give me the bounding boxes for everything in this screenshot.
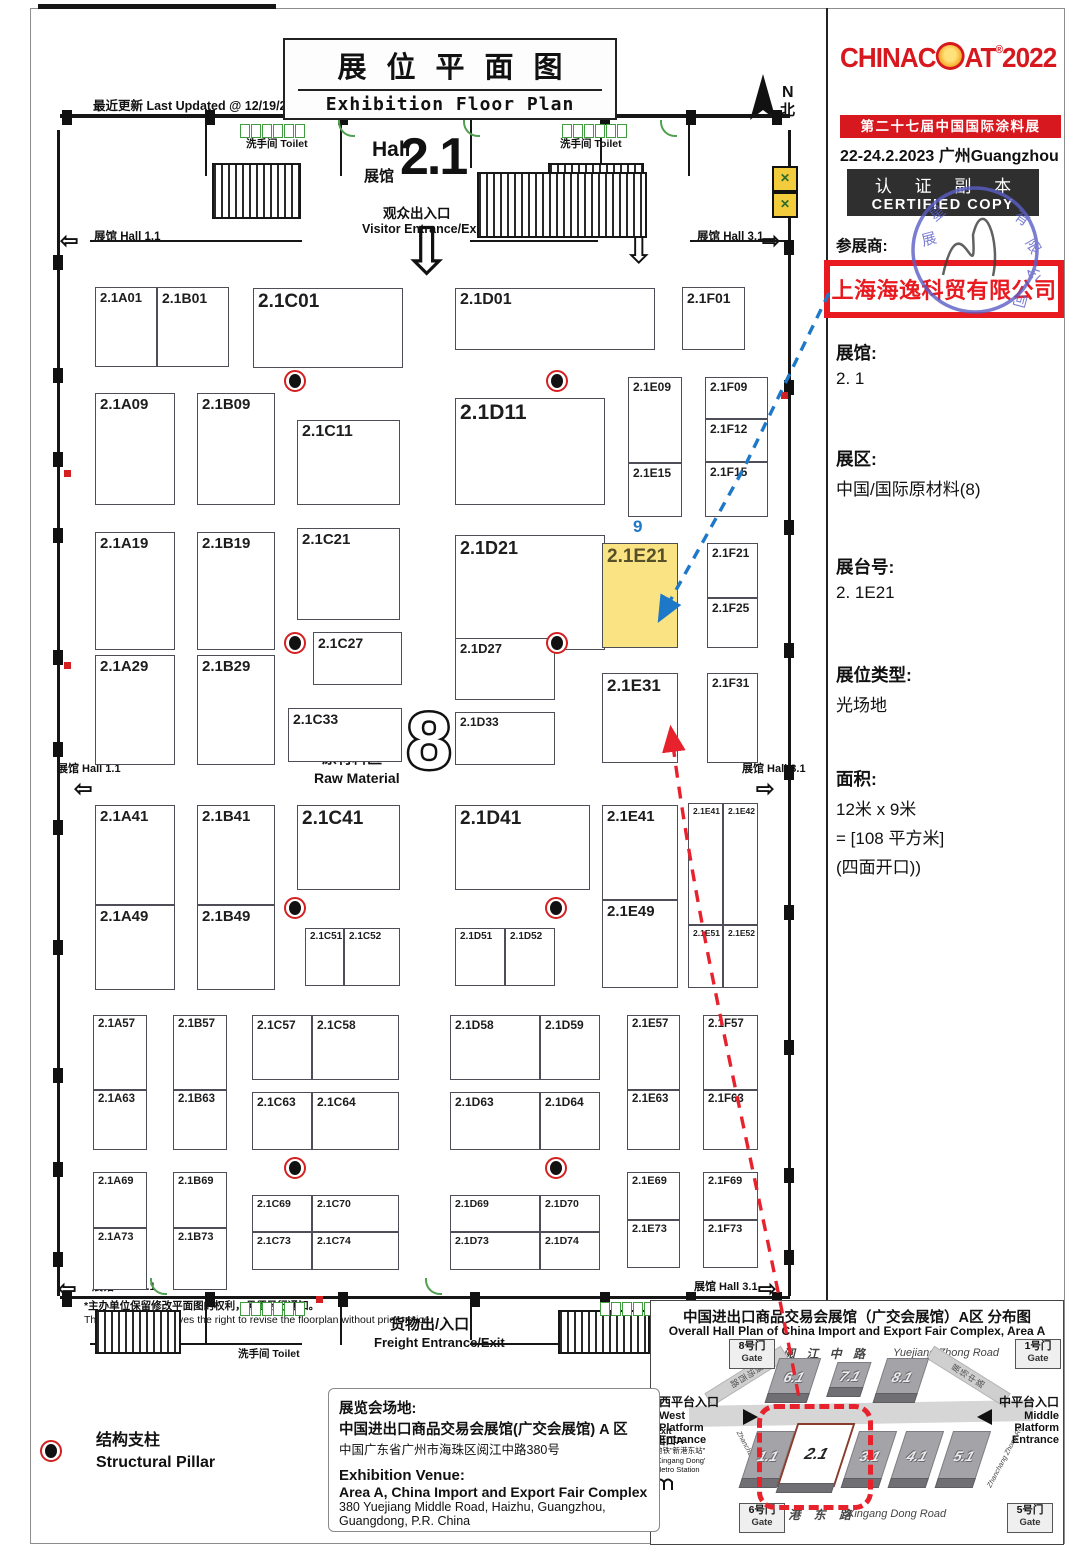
wall-pillar bbox=[784, 240, 794, 255]
chinacoat-logo: CHINACAT®2022 bbox=[840, 42, 1064, 74]
wall-pillar bbox=[784, 1250, 794, 1265]
svg-text:展: 展 bbox=[920, 230, 939, 250]
toilet-stall bbox=[262, 124, 272, 138]
booth-2.1C73: 2.1C73 bbox=[252, 1232, 312, 1270]
west-entrance-arrow-icon bbox=[743, 1409, 758, 1425]
booth-2.1C33: 2.1C33 bbox=[288, 708, 402, 762]
booth-2.1E51: 2.1E51 bbox=[688, 925, 723, 988]
hall11-arrow-left-mid-icon: ⇦ bbox=[74, 776, 92, 801]
booth-dim-width: 9 bbox=[633, 517, 642, 537]
hall31-label-top: 展馆 Hall 3.1 bbox=[697, 231, 763, 244]
certified-en: CERTIFIED COPY bbox=[847, 197, 1039, 213]
field-label: 面积: bbox=[836, 766, 877, 791]
toilet-stall bbox=[295, 1302, 305, 1316]
title-separator bbox=[298, 89, 602, 91]
wall-pillar bbox=[53, 452, 63, 467]
booth-2.1D51: 2.1D51 bbox=[455, 928, 505, 986]
svg-text:8: 8 bbox=[407, 696, 452, 785]
booth-2.1A49: 2.1A49 bbox=[95, 905, 175, 990]
booth-2.1D01: 2.1D01 bbox=[455, 288, 655, 350]
escalator-icon: ✕ bbox=[772, 166, 798, 192]
venue-en-line2: 380 Yuejiang Middle Road, Haizhu, Guangz… bbox=[339, 1500, 649, 1514]
middle-platform-entrance: 中平台入口 MiddlePlatformEntrance bbox=[995, 1393, 1059, 1446]
toilet-stall bbox=[273, 1302, 283, 1316]
wall-marker-red bbox=[64, 470, 71, 477]
field-value: 光场地 bbox=[836, 691, 887, 716]
booth-2.1D52: 2.1D52 bbox=[505, 928, 555, 986]
wall-segment bbox=[90, 240, 302, 242]
wall-pillar bbox=[53, 255, 63, 270]
event-date: 22-24.2.2023 广州Guangzhou bbox=[840, 142, 1059, 166]
toilet-stall bbox=[611, 1302, 621, 1316]
wall-pillar bbox=[784, 643, 794, 658]
minimap-hall-5.1: 5.1 bbox=[937, 1431, 991, 1481]
structural-pillar-icon bbox=[284, 632, 306, 654]
wall-pillar bbox=[470, 1292, 480, 1307]
wall-marker-red bbox=[316, 1296, 323, 1303]
venue-en-line3: Guangdong, P.R. China bbox=[339, 1514, 649, 1528]
booth-2.1B19: 2.1B19 bbox=[197, 532, 275, 650]
hall31-label-bottom: 展馆 Hall 3.1 bbox=[694, 1281, 758, 1294]
booth-2.1F01: 2.1F01 bbox=[682, 287, 745, 350]
toilet-stall bbox=[584, 124, 594, 138]
booth-2.1F25: 2.1F25 bbox=[707, 598, 758, 648]
structural-pillar-icon bbox=[545, 1157, 567, 1179]
booth-2.1C27: 2.1C27 bbox=[313, 632, 402, 685]
hall11-arrow-left-icon: ⇦ bbox=[60, 228, 78, 253]
booth-2.1C69: 2.1C69 bbox=[252, 1195, 312, 1232]
wall-pillar bbox=[686, 110, 696, 125]
booth-2.1D70: 2.1D70 bbox=[540, 1195, 600, 1232]
booth-2.1C21: 2.1C21 bbox=[297, 528, 400, 620]
exhibitor-label: 参展商: bbox=[836, 238, 888, 256]
hall31-label-mid: 展馆 Hall 3.1 bbox=[742, 763, 806, 776]
toilet-stall bbox=[251, 1302, 261, 1316]
structural-pillar-icon bbox=[284, 1157, 306, 1179]
booth-2.1C41: 2.1C41 bbox=[297, 805, 400, 890]
booth-2.1E41: 2.1E41 bbox=[602, 805, 678, 900]
booth-2.1A57: 2.1A57 bbox=[93, 1015, 147, 1090]
booth-2.1B63: 2.1B63 bbox=[173, 1090, 227, 1150]
toilet-stall bbox=[622, 1302, 632, 1316]
field-label: 展馆: bbox=[836, 340, 877, 365]
legend-pillar-en: Structural Pillar bbox=[96, 1454, 215, 1472]
certified-copy-badge: 认 证 副 本 CERTIFIED COPY bbox=[847, 169, 1039, 216]
stairs-hatch bbox=[477, 172, 647, 238]
highlight-dashed-box bbox=[757, 1404, 873, 1510]
hall31-arrow-right-mid-icon: ⇨ bbox=[756, 776, 774, 801]
wall-segment bbox=[57, 130, 60, 1296]
scan-artifact-line bbox=[38, 4, 276, 9]
wall-pillar bbox=[205, 1292, 215, 1307]
booth-2.1F57: 2.1F57 bbox=[703, 1015, 758, 1090]
booth-2.1D74: 2.1D74 bbox=[540, 1232, 600, 1270]
toilet-label-2: 洗手间 Toilet bbox=[560, 138, 622, 150]
booth-2.1F69: 2.1F69 bbox=[703, 1172, 758, 1220]
toilet-stall bbox=[573, 124, 583, 138]
wall-pillar bbox=[205, 110, 215, 125]
structural-pillar-legend-icon bbox=[40, 1440, 62, 1462]
booth-2.1D73: 2.1D73 bbox=[450, 1232, 540, 1270]
structural-pillar-icon bbox=[545, 897, 567, 919]
booth-2.1B57: 2.1B57 bbox=[173, 1015, 227, 1090]
field-value: (四面开口)) bbox=[836, 853, 921, 878]
booth-2.1D11: 2.1D11 bbox=[455, 398, 605, 505]
venue-info-box: 展览会场地: 中国进出口商品交易会展馆(广交会展馆) A 区 中国广东省广州市海… bbox=[328, 1388, 660, 1532]
booth-2.1B09: 2.1B09 bbox=[197, 393, 275, 505]
booth-2.1E69: 2.1E69 bbox=[627, 1172, 680, 1220]
booth-2.1B49: 2.1B49 bbox=[197, 905, 275, 990]
scanned-floorplan-page: 最近更新 Last Updated @ 12/19/2022 展位平面图 Exh… bbox=[0, 0, 1080, 1548]
hall-number: 2.1 bbox=[400, 128, 466, 188]
wall-pillar bbox=[338, 1292, 348, 1307]
booth-2.1B41: 2.1B41 bbox=[197, 805, 275, 905]
booth-2.1B73: 2.1B73 bbox=[173, 1228, 227, 1290]
booth-2.1E09: 2.1E09 bbox=[628, 377, 682, 463]
field-label: 展位类型: bbox=[836, 662, 912, 687]
booth-2.1A41: 2.1A41 bbox=[95, 805, 175, 905]
booth-2.1E73: 2.1E73 bbox=[627, 1220, 680, 1268]
booth-2.1E49: 2.1E49 bbox=[602, 900, 678, 988]
plan-title-en: Exhibition Floor Plan bbox=[326, 94, 575, 115]
booth-2.1D63: 2.1D63 bbox=[450, 1092, 540, 1150]
booth-2.1C11: 2.1C11 bbox=[297, 420, 400, 505]
field-value: 2. 1E21 bbox=[836, 583, 895, 603]
booth-2.1A63: 2.1A63 bbox=[93, 1090, 147, 1150]
wall-segment bbox=[788, 130, 791, 1296]
structural-pillar-icon bbox=[284, 897, 306, 919]
booth-2.1C74: 2.1C74 bbox=[312, 1232, 399, 1270]
toilet-stall bbox=[251, 124, 261, 138]
booth-2.1E31: 2.1E31 bbox=[602, 673, 678, 763]
booth-2.1E52: 2.1E52 bbox=[723, 925, 758, 988]
sidebar-divider bbox=[826, 8, 828, 1300]
wall-pillar bbox=[784, 765, 794, 780]
field-value: 12米 x 9米 bbox=[836, 795, 916, 820]
booth-2.1B01: 2.1B01 bbox=[157, 287, 229, 367]
certified-cn: 认 证 副 本 bbox=[847, 169, 1039, 197]
stairs-hatch bbox=[558, 1310, 650, 1354]
entrance-arrow-down-icon: ⇩ bbox=[399, 218, 454, 284]
booth-2.1D33: 2.1D33 bbox=[455, 712, 555, 765]
booth-2.1C52: 2.1C52 bbox=[344, 928, 400, 986]
wall-pillar bbox=[62, 1292, 72, 1307]
wall-pillar bbox=[53, 368, 63, 383]
minimap-hall-4.1: 4.1 bbox=[890, 1431, 944, 1481]
structural-pillar-icon bbox=[546, 632, 568, 654]
toilet-label-1: 洗手间 Toilet bbox=[246, 138, 308, 150]
plan-title-cn: 展位平面图 bbox=[317, 44, 582, 86]
venue-cn-label: 展览会场地: bbox=[339, 1397, 649, 1418]
gate-1: 1号门Gate bbox=[1015, 1339, 1061, 1369]
booth-2.1E41: 2.1E41 bbox=[688, 803, 723, 925]
hall11-label-top: 展馆 Hall 1.1 bbox=[94, 231, 160, 244]
booth-2.1A69: 2.1A69 bbox=[93, 1172, 147, 1228]
wall-pillar bbox=[53, 528, 63, 543]
last-updated-note: 最近更新 Last Updated @ 12/19/2022 bbox=[93, 99, 307, 113]
booth-2.1F12: 2.1F12 bbox=[705, 419, 768, 462]
wall-segment bbox=[470, 240, 598, 242]
booth-2.1E57: 2.1E57 bbox=[627, 1015, 680, 1090]
stairs-hatch bbox=[95, 1310, 181, 1354]
toilet-stall bbox=[617, 124, 627, 138]
overall-hall-minimap: 中国进出口商品交易会展馆（广交会展馆）A区 分布图 Overall Hall P… bbox=[650, 1300, 1064, 1545]
wall-pillar bbox=[53, 1068, 63, 1083]
wall-segment bbox=[690, 240, 788, 242]
booth-2.1F63: 2.1F63 bbox=[703, 1090, 758, 1150]
hall-word-cn: 展馆 bbox=[364, 168, 394, 185]
booth-2.1E63: 2.1E63 bbox=[627, 1090, 680, 1150]
venue-en-label: Exhibition Venue: bbox=[339, 1467, 649, 1484]
logo-year: 2022 bbox=[1002, 42, 1056, 73]
booth-2.1E15: 2.1E15 bbox=[628, 463, 682, 517]
booth-2.1D58: 2.1D58 bbox=[450, 1015, 540, 1080]
wall-segment bbox=[205, 118, 207, 176]
minimap-hall-8.1: 8.1 bbox=[875, 1358, 929, 1396]
zone-number-8: 8 bbox=[396, 694, 462, 786]
booth-2.1A09: 2.1A09 bbox=[95, 393, 175, 505]
toilet-stall bbox=[284, 124, 294, 138]
wall-pillar bbox=[53, 1162, 63, 1177]
venue-en-line1: Area A, China Import and Export Fair Com… bbox=[339, 1484, 649, 1500]
wall-pillar bbox=[53, 650, 63, 665]
booth-2.1B29: 2.1B29 bbox=[197, 655, 275, 765]
toilet-stall bbox=[262, 1302, 272, 1316]
toilet-stall bbox=[295, 124, 305, 138]
wall-pillar bbox=[53, 820, 63, 835]
field-value: = [108 平方米] bbox=[836, 824, 944, 849]
booth-2.1A01: 2.1A01 bbox=[95, 287, 157, 367]
booth-2.1C70: 2.1C70 bbox=[312, 1195, 399, 1232]
booth-2.1A29: 2.1A29 bbox=[95, 655, 175, 765]
wall-pillar bbox=[53, 940, 63, 955]
booth-2.1D21: 2.1D21 bbox=[455, 535, 605, 650]
booth-2.1F15: 2.1F15 bbox=[705, 462, 768, 517]
wall-marker-red bbox=[64, 662, 71, 669]
wall-segment bbox=[60, 1296, 790, 1299]
door-arc bbox=[425, 1278, 442, 1295]
logo-text-right: AT bbox=[965, 42, 996, 73]
booth-2.1C63: 2.1C63 bbox=[252, 1092, 312, 1150]
booth-2.1A19: 2.1A19 bbox=[95, 532, 175, 650]
toilet-stall bbox=[273, 124, 283, 138]
wall-pillar bbox=[784, 905, 794, 920]
booth-2.1D69: 2.1D69 bbox=[450, 1195, 540, 1232]
svg-text:限: 限 bbox=[1022, 236, 1044, 258]
booth-2.1D41: 2.1D41 bbox=[455, 805, 590, 890]
field-value: 中国/国际原材料(8) bbox=[836, 475, 981, 500]
toilet-stall bbox=[240, 1302, 250, 1316]
toilet-stall bbox=[633, 1302, 643, 1316]
wall-pillar bbox=[53, 742, 63, 757]
escalator-icon: ✕ bbox=[772, 192, 798, 218]
wall-pillar bbox=[784, 1040, 794, 1055]
toilet-stall bbox=[595, 124, 605, 138]
venue-cn-line1: 中国进出口商品交易会展馆(广交会展馆) A 区 bbox=[339, 1418, 649, 1439]
booth-2.1D27: 2.1D27 bbox=[455, 638, 555, 700]
minimap-title-en: Overall Hall Plan of China Import and Ex… bbox=[651, 1324, 1063, 1338]
wall-segment bbox=[688, 118, 690, 176]
exhibitor-company-name: 上海海逸科贸有限公司 bbox=[831, 273, 1056, 305]
structural-pillar-icon bbox=[546, 370, 568, 392]
booth-2.1C51: 2.1C51 bbox=[305, 928, 344, 986]
metro-exit-info: Exit 出口A 地铁"新港东站" 'Xingang Dong' Metro S… bbox=[655, 1427, 705, 1491]
gate-5: 5号门Gate bbox=[1007, 1503, 1053, 1533]
zone-label-en: Raw Material bbox=[314, 770, 400, 786]
booth-2.1D64: 2.1D64 bbox=[540, 1092, 600, 1150]
wall-pillar bbox=[62, 110, 72, 125]
exhibitor-company-box: 上海海逸科贸有限公司 bbox=[824, 260, 1064, 318]
field-label: 展区: bbox=[836, 446, 877, 471]
wall-marker-red bbox=[781, 392, 788, 399]
logo-subtitle-bar: 第二十七届中国国际涂料展 bbox=[840, 115, 1061, 138]
field-label: 展台号: bbox=[836, 554, 894, 579]
north-n: N bbox=[782, 84, 794, 102]
toilet-stall bbox=[606, 124, 616, 138]
toilet-stall bbox=[284, 1302, 294, 1316]
legend-pillar-cn: 结构支柱 bbox=[96, 1432, 160, 1450]
plan-title-box: 展位平面图 Exhibition Floor Plan bbox=[283, 38, 617, 120]
structural-pillar-icon bbox=[284, 370, 306, 392]
booth-2.1A73: 2.1A73 bbox=[93, 1228, 147, 1290]
wall-pillar bbox=[784, 1168, 794, 1183]
wall-pillar bbox=[772, 110, 782, 125]
booth-2.1C01: 2.1C01 bbox=[253, 288, 403, 368]
stairs-hatch bbox=[212, 163, 301, 219]
logo-text-left: CHINAC bbox=[840, 42, 936, 73]
door-arc bbox=[660, 120, 677, 137]
toilet-label-3: 洗手间 Toilet bbox=[238, 1348, 300, 1360]
booth-2.1F31: 2.1F31 bbox=[707, 673, 758, 763]
gate-8: 8号门Gate bbox=[729, 1339, 775, 1369]
toilet-stall bbox=[240, 124, 250, 138]
booth-2.1C64: 2.1C64 bbox=[312, 1092, 399, 1150]
logo-o-icon bbox=[936, 42, 965, 70]
booth-2.1F73: 2.1F73 bbox=[703, 1220, 758, 1268]
booth-2.1C58: 2.1C58 bbox=[312, 1015, 399, 1080]
booth-2.1E42: 2.1E42 bbox=[723, 803, 758, 925]
booth-2.1D59: 2.1D59 bbox=[540, 1015, 600, 1080]
wall-pillar bbox=[784, 520, 794, 535]
booth-2.1E21: 2.1E21 bbox=[602, 543, 678, 648]
booth-2.1F09: 2.1F09 bbox=[705, 377, 768, 419]
venue-cn-line2: 中国广东省广州市海珠区阅江中路380号 bbox=[339, 1439, 649, 1458]
toilet-stall bbox=[562, 124, 572, 138]
road-xingang-en: Xingang Dong Road bbox=[847, 1508, 946, 1520]
middle-entrance-arrow-icon bbox=[977, 1409, 992, 1425]
booth-2.1B69: 2.1B69 bbox=[173, 1172, 227, 1228]
booth-2.1C57: 2.1C57 bbox=[252, 1015, 312, 1080]
minimap-hall-7.1: 7.1 bbox=[828, 1362, 871, 1390]
wall-pillar bbox=[53, 1252, 63, 1267]
toilet-stall bbox=[600, 1302, 610, 1316]
field-value: 2. 1 bbox=[836, 369, 864, 389]
booth-2.1F21: 2.1F21 bbox=[707, 543, 758, 598]
